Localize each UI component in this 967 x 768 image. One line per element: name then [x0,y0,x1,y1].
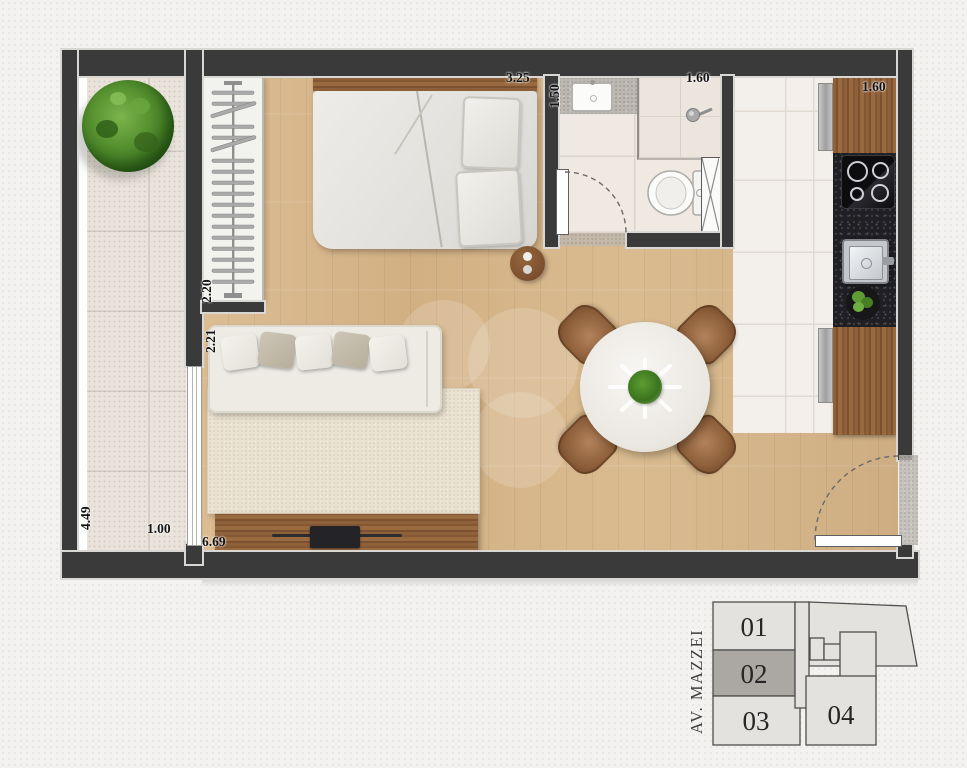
kitchen-lower-cabinet [833,327,896,435]
centerpiece-plant-icon [628,370,662,404]
watermark-circle [472,392,568,488]
building-keyplan: 01 02 03 04 AV. MAZZEI [682,594,922,750]
closet-hangers-icon [204,78,262,300]
keyplan-unit-02-label: 02 [741,659,768,689]
tv-screen [310,526,360,548]
floorplan-canvas: 3.25 1.50 1.60 1.60 2.20 2.21 4.49 1.00 … [0,0,967,768]
bathroom-door-leaf [556,169,569,235]
wall-closet-stub [202,302,264,312]
keyplan-core-room [824,644,841,660]
sofa-pillow [368,334,408,372]
keyplan-core-room [810,638,824,660]
bathroom-sink [571,82,613,112]
dim-living-length: 6.69 [202,534,226,550]
sofa-pillow [220,333,260,372]
counter-plant-icon [846,286,880,320]
sofa-pillow [294,333,333,371]
keyplan-unit-03-label: 03 [743,706,770,736]
keyplan-unit-01-label: 01 [741,612,768,642]
cabinet-side-panel [818,328,833,403]
shaft-vent [701,157,721,233]
bedside-table [510,246,545,281]
plan-shadow [202,578,918,587]
bed-sheet-fold [394,94,433,154]
bed-headboard [313,76,537,91]
dim-bedroom-width: 3.25 [506,70,530,86]
faucet-icon [882,257,894,265]
cooktop-icon [842,156,894,208]
wall-right [898,50,912,460]
living-balcony-window [187,366,202,546]
keyplan-street-label: AV. MAZZEI [687,629,706,734]
dim-balcony-length: 4.49 [78,506,94,530]
kitchen-sink-icon [842,239,889,284]
entry-threshold [899,455,918,545]
dim-living-wall: 2.21 [203,329,219,353]
dim-bathroom-depth: 1.50 [547,84,563,108]
dim-bathroom-width: 1.60 [686,70,710,86]
fridge-panel [818,83,833,151]
shower-head-icon [684,106,714,122]
wall-left [62,50,77,578]
dim-balcony-width: 1.00 [147,521,171,537]
wall-balcony-divider [186,50,202,366]
dim-closet-length: 2.20 [199,279,215,303]
tv-console [215,514,478,557]
tree-icon [82,80,174,172]
entry-door-leaf [815,535,902,547]
sofa-pillow [331,331,371,370]
wall-bathroom-right [722,76,733,247]
wall-balcony-divider-stub [186,544,202,564]
dim-kitchen-width: 1.60 [862,79,886,95]
bed-pillow [461,96,521,170]
bed-pillow [455,168,523,247]
sofa-pillow [257,331,297,369]
keyplan-core-room [840,632,876,680]
dining-table [580,322,710,452]
closet [202,76,264,302]
keyplan-unit-04-label: 04 [828,700,856,730]
wall-bathroom-bottom [627,233,733,247]
